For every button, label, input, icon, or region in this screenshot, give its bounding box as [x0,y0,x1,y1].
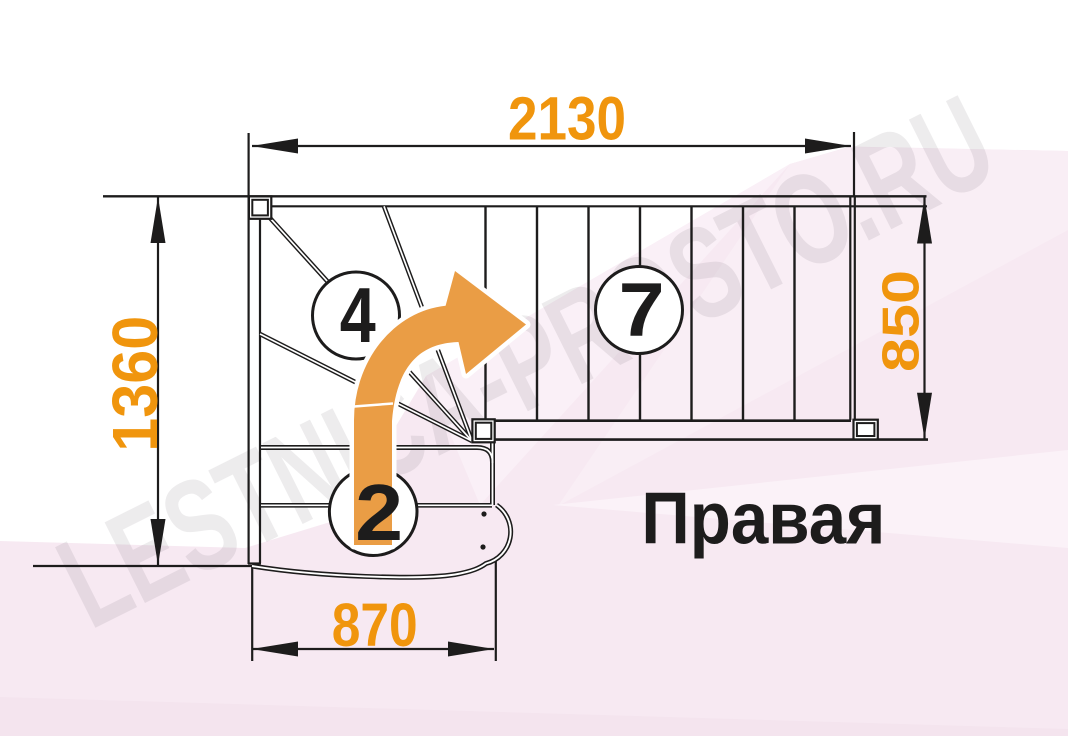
svg-text:4: 4 [340,271,376,359]
svg-text:7: 7 [619,268,665,353]
svg-text:2: 2 [355,468,403,557]
svg-text:850: 850 [873,270,931,372]
svg-text:1360: 1360 [99,316,171,452]
svg-text:2130: 2130 [508,85,626,153]
svg-text:Правая: Правая [641,478,885,559]
svg-text:870: 870 [332,591,418,659]
